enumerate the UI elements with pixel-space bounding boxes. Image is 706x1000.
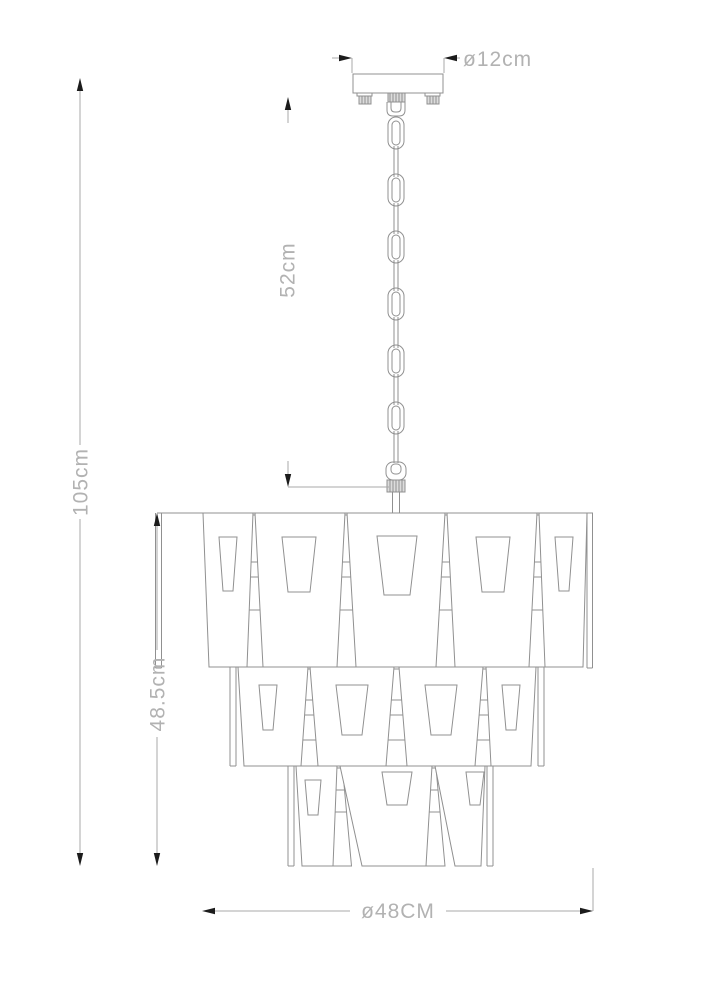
canopy-plate [353,74,443,93]
tier3-front-shades [296,766,485,866]
tier3-left-slat [288,766,294,866]
stem [393,492,400,513]
chain-link [388,231,404,263]
chandelier-body [156,513,594,866]
ceiling-canopy [353,74,443,116]
chain-link [388,174,404,206]
total-height-dimension: 105cm [70,78,93,866]
canopy-coupler [387,93,405,116]
chain-side-links [394,146,398,463]
drawing-canvas: ø12cm 52cm 105cm 48.5cm ø48CM [0,0,706,1000]
tier2-left-slat [230,667,236,766]
tier1-left-slat [156,513,162,668]
tier2-front-shades [238,667,536,766]
canopy-right-nut [425,93,440,104]
chain-link [388,117,404,149]
canopy-diameter-dimension: ø12cm [332,48,532,73]
body-diameter-label: ø48CM [361,900,435,923]
chandelier-dimension-drawing: ø12cm 52cm 105cm 48.5cm ø48CM [0,0,706,1000]
total-height-label: 105cm [70,448,93,516]
body-height-label: 48.5cm [147,657,170,732]
canopy-left-nut [357,93,372,104]
chain-length-label: 52cm [277,242,300,297]
canopy-diameter-label: ø12cm [463,48,532,71]
stem-ferrule [387,480,405,492]
tier1-front-shades [203,513,587,667]
tier2-right-slat [538,667,544,766]
tier1-right-slat [587,513,593,668]
chain-length-dimension: 52cm [277,97,390,487]
suspension-chain [386,117,406,513]
body-height-dimension: 48.5cm [147,513,170,866]
chain-link [388,345,404,377]
chain-link [388,402,404,434]
hanger-loop [386,462,406,480]
chain-link [388,288,404,320]
tier3-right-slat [487,766,493,866]
body-diameter-dimension: ø48CM [202,868,593,923]
